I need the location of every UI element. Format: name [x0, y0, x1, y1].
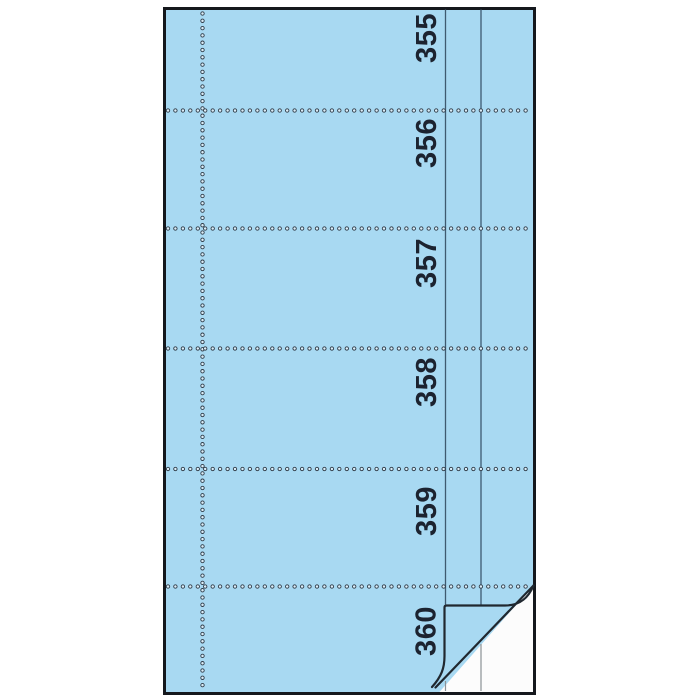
perforation-hole [315, 585, 318, 588]
perforation-hole [516, 585, 519, 588]
perforation-hole [405, 227, 408, 230]
perforation-hole [464, 109, 467, 112]
perforation-hole [211, 347, 214, 350]
perforation-hole [196, 227, 199, 230]
perforation-hole [412, 467, 415, 470]
perforation-hole [201, 78, 204, 81]
perforation-hole [201, 121, 204, 124]
perforation-hole [494, 467, 497, 470]
perforation-hole [218, 347, 221, 350]
perforation-hole [323, 227, 326, 230]
coupon-number-357: 357 [411, 238, 443, 288]
perforation-hole [201, 114, 204, 117]
perforation-hole [201, 567, 204, 570]
perforation-hole [204, 109, 207, 112]
perforation-hole [218, 467, 221, 470]
perforation-hole [382, 227, 385, 230]
perforation-hole [502, 227, 505, 230]
perforation-hole [201, 370, 204, 373]
perforation-hole [201, 85, 204, 88]
perforation-hole [201, 596, 204, 599]
perforation-hole [397, 227, 400, 230]
perforation-hole [442, 347, 445, 350]
perforation-hole [256, 347, 259, 350]
perforation-hole [435, 467, 438, 470]
perforation-hole [201, 202, 204, 205]
perforation-hole [524, 227, 527, 230]
perforation-hole [405, 467, 408, 470]
perforation-hole [174, 585, 177, 588]
perforation-hole [196, 467, 199, 470]
perforation-hole [201, 377, 204, 380]
perforation-hole [502, 585, 505, 588]
coupon-number-360: 360 [411, 606, 443, 656]
perforation-hole [233, 347, 236, 350]
perforation-hole [201, 12, 204, 15]
perforation-hole [201, 136, 204, 139]
perforation-hole [278, 109, 281, 112]
perforation-hole [201, 311, 204, 314]
perforation-hole [204, 467, 207, 470]
perforation-hole [233, 227, 236, 230]
perforation-hole [360, 109, 363, 112]
perforation-hole [201, 516, 204, 519]
perforation-hole [201, 275, 204, 278]
perforation-hole [427, 347, 430, 350]
perforation-hole [166, 227, 169, 230]
perforation-hole [166, 585, 169, 588]
perforation-hole [233, 467, 236, 470]
perforation-hole [412, 585, 415, 588]
product-photo: 355 356 357 358 359 360 [0, 0, 700, 700]
perforation-hole [449, 347, 452, 350]
perforation-hole [201, 479, 204, 482]
perforation-hole [353, 585, 356, 588]
perforation-hole [472, 347, 475, 350]
perforation-hole [211, 109, 214, 112]
perforation-hole [330, 227, 333, 230]
perforation-hole [300, 109, 303, 112]
perforation-hole [201, 669, 204, 672]
perforation-hole [278, 467, 281, 470]
perforation-hole [233, 585, 236, 588]
perforation-hole [442, 109, 445, 112]
perforation-hole [286, 467, 289, 470]
perforation-hole [201, 231, 204, 234]
perforation-hole [405, 109, 408, 112]
perforation-hole [196, 585, 199, 588]
perforation-hole [201, 494, 204, 497]
perforation-hole [201, 625, 204, 628]
perforation-hole [271, 467, 274, 470]
perforation-hole [457, 347, 460, 350]
perforation-hole [174, 347, 177, 350]
perforation-hole [464, 227, 467, 230]
perforation-hole [201, 618, 204, 621]
perforation-hole [487, 585, 490, 588]
perforation-hole [286, 585, 289, 588]
perforation-hole [201, 19, 204, 22]
perforation-hole [201, 355, 204, 358]
perforation-hole [308, 467, 311, 470]
perforation-hole [201, 472, 204, 475]
perforation-hole [263, 347, 266, 350]
perforation-hole [427, 467, 430, 470]
perforation-hole [201, 574, 204, 577]
perforation-hole [293, 109, 296, 112]
perforation-hole [218, 109, 221, 112]
perforation-hole [353, 347, 356, 350]
perforation-hole [338, 109, 341, 112]
perforation-hole [201, 180, 204, 183]
perforation-hole [263, 109, 266, 112]
perforation-hole [201, 676, 204, 679]
perforation-hole [201, 457, 204, 460]
perforation-hole [201, 589, 204, 592]
perforation-hole [367, 109, 370, 112]
perforation-hole [449, 227, 452, 230]
perforation-hole [420, 467, 423, 470]
perforation-hole [338, 347, 341, 350]
perforation-hole [308, 227, 311, 230]
perforation-hole [427, 227, 430, 230]
perforation-hole [201, 260, 204, 263]
coupon-number-359: 359 [411, 486, 443, 536]
perforation-hole [201, 172, 204, 175]
perforation-hole [338, 227, 341, 230]
perforation-hole [487, 347, 490, 350]
perforation-hole [201, 129, 204, 132]
perforation-hole [181, 585, 184, 588]
perforation-hole [201, 683, 204, 686]
perforation-hole [502, 347, 505, 350]
perforation-hole [189, 467, 192, 470]
perforation-hole [201, 559, 204, 562]
perforation-hole [201, 464, 204, 467]
perforation-hole [382, 467, 385, 470]
perforation-hole [494, 347, 497, 350]
perforation-hole [201, 56, 204, 59]
perforation-hole [218, 227, 221, 230]
perforation-hole [293, 467, 296, 470]
perforation-hole [204, 347, 207, 350]
perforation-hole [353, 227, 356, 230]
perforation-hole [196, 347, 199, 350]
order-pad-image: 355 356 357 358 359 360 [0, 0, 700, 700]
perforation-hole [442, 467, 445, 470]
perforation-hole [509, 467, 512, 470]
perforation-hole [427, 585, 430, 588]
perforation-hole [315, 347, 318, 350]
perforation-hole [435, 109, 438, 112]
perforation-hole [271, 227, 274, 230]
perforation-hole [204, 585, 207, 588]
perforation-hole [360, 347, 363, 350]
perforation-hole [256, 585, 259, 588]
perforation-hole [524, 585, 527, 588]
perforation-hole [201, 70, 204, 73]
perforation-hole [174, 109, 177, 112]
perforation-hole [330, 347, 333, 350]
perforation-hole [201, 245, 204, 248]
perforation-hole [201, 340, 204, 343]
perforation-hole [367, 467, 370, 470]
perforation-hole [201, 165, 204, 168]
perforation-hole [442, 227, 445, 230]
perforation-hole [300, 585, 303, 588]
perforation-hole [286, 227, 289, 230]
perforation-hole [390, 585, 393, 588]
perforation-hole [201, 238, 204, 241]
perforation-hole [201, 654, 204, 657]
perforation-hole [420, 227, 423, 230]
perforation-hole [201, 501, 204, 504]
perforation-hole [494, 585, 497, 588]
perforation-hole [524, 347, 527, 350]
perforation-hole [412, 347, 415, 350]
perforation-hole [338, 467, 341, 470]
perforation-hole [241, 585, 244, 588]
perforation-hole [323, 467, 326, 470]
perforation-hole [435, 347, 438, 350]
perforation-hole [464, 347, 467, 350]
perforation-hole [315, 109, 318, 112]
perforation-hole [390, 109, 393, 112]
perforation-hole [457, 467, 460, 470]
perforation-hole [201, 158, 204, 161]
perforation-hole [189, 347, 192, 350]
perforation-hole [487, 467, 490, 470]
perforation-hole [427, 109, 430, 112]
perforation-hole [293, 227, 296, 230]
perforation-hole [367, 585, 370, 588]
perforation-hole [479, 467, 482, 470]
perforation-hole [201, 92, 204, 95]
perforation-hole [201, 326, 204, 329]
perforation-hole [201, 304, 204, 307]
perforation-hole [278, 227, 281, 230]
perforation-hole [300, 227, 303, 230]
perforation-hole [502, 467, 505, 470]
perforation-hole [196, 109, 199, 112]
perforation-hole [360, 585, 363, 588]
perforation-hole [300, 347, 303, 350]
perforation-hole [375, 347, 378, 350]
perforation-hole [263, 227, 266, 230]
perforation-hole [449, 585, 452, 588]
perforation-hole [201, 399, 204, 402]
perforation-hole [201, 443, 204, 446]
perforation-hole [201, 282, 204, 285]
perforation-hole [278, 585, 281, 588]
perforation-hole [479, 227, 482, 230]
perforation-hole [479, 347, 482, 350]
perforation-hole [323, 347, 326, 350]
perforation-hole [449, 467, 452, 470]
coupon-number-358: 358 [411, 357, 443, 407]
perforation-hole [405, 585, 408, 588]
perforation-hole [278, 347, 281, 350]
perforation-hole [201, 450, 204, 453]
perforation-hole [189, 585, 192, 588]
perforation-hole [201, 413, 204, 416]
perforation-hole [315, 227, 318, 230]
perforation-hole [420, 585, 423, 588]
perforation-hole [201, 552, 204, 555]
perforation-hole [375, 109, 378, 112]
perforation-hole [300, 467, 303, 470]
perforation-hole [487, 227, 490, 230]
perforation-hole [201, 26, 204, 29]
perforation-hole [360, 227, 363, 230]
perforation-hole [201, 224, 204, 227]
perforation-hole [201, 194, 204, 197]
perforation-hole [494, 109, 497, 112]
perforation-hole [226, 227, 229, 230]
perforation-hole [174, 467, 177, 470]
perforation-hole [271, 109, 274, 112]
perforation-hole [166, 347, 169, 350]
perforation-hole [201, 523, 204, 526]
perforation-hole [390, 467, 393, 470]
perforation-hole [241, 109, 244, 112]
perforation-hole [435, 585, 438, 588]
perforation-hole [449, 109, 452, 112]
perforation-hole [397, 109, 400, 112]
perforation-hole [201, 391, 204, 394]
perforation-hole [271, 347, 274, 350]
perforation-hole [420, 109, 423, 112]
perforation-hole [201, 428, 204, 431]
perforation-hole [201, 48, 204, 51]
perforation-hole [201, 603, 204, 606]
perforation-hole [323, 109, 326, 112]
perforation-hole [201, 151, 204, 154]
coupon-number-355: 355 [411, 13, 443, 63]
perforation-hole [201, 530, 204, 533]
perforation-hole [457, 227, 460, 230]
perforation-hole [226, 585, 229, 588]
coupon-number-356: 356 [411, 118, 443, 168]
perforation-hole [509, 109, 512, 112]
perforation-hole [248, 109, 251, 112]
perforation-hole [201, 253, 204, 256]
perforation-hole [241, 227, 244, 230]
perforation-hole [516, 347, 519, 350]
perforation-hole [201, 662, 204, 665]
perforation-hole [472, 467, 475, 470]
perforation-hole [330, 585, 333, 588]
perforation-hole [226, 347, 229, 350]
perforation-hole [211, 467, 214, 470]
perforation-hole [189, 109, 192, 112]
perforation-hole [181, 109, 184, 112]
perforation-hole [330, 467, 333, 470]
perforation-hole [397, 467, 400, 470]
perforation-hole [502, 109, 505, 112]
perforation-hole [457, 585, 460, 588]
perforation-hole [256, 467, 259, 470]
perforation-hole [345, 467, 348, 470]
perforation-hole [218, 585, 221, 588]
perforation-hole [464, 585, 467, 588]
perforation-hole [201, 209, 204, 212]
perforation-hole [412, 227, 415, 230]
perforation-hole [201, 632, 204, 635]
perforation-hole [201, 486, 204, 489]
perforation-hole [494, 227, 497, 230]
perforation-hole [201, 143, 204, 146]
perforation-hole [181, 227, 184, 230]
perforation-hole [516, 227, 519, 230]
perforation-hole [375, 227, 378, 230]
perforation-hole [345, 347, 348, 350]
perforation-hole [201, 267, 204, 270]
perforation-hole [405, 347, 408, 350]
perforation-hole [479, 109, 482, 112]
perforation-hole [308, 347, 311, 350]
perforation-hole [201, 610, 204, 613]
perforation-hole [457, 109, 460, 112]
perforation-hole [509, 347, 512, 350]
perforation-hole [390, 347, 393, 350]
perforation-hole [263, 467, 266, 470]
perforation-hole [201, 435, 204, 438]
perforation-hole [516, 467, 519, 470]
perforation-hole [286, 109, 289, 112]
perforation-hole [516, 109, 519, 112]
perforation-hole [201, 63, 204, 66]
perforation-hole [201, 34, 204, 37]
perforation-hole [201, 362, 204, 365]
perforation-hole [201, 508, 204, 511]
perforation-hole [345, 227, 348, 230]
perforation-hole [201, 318, 204, 321]
perforation-hole [263, 585, 266, 588]
perforation-hole [390, 227, 393, 230]
perforation-hole [412, 109, 415, 112]
perforation-hole [271, 585, 274, 588]
perforation-hole [472, 109, 475, 112]
perforation-hole [248, 347, 251, 350]
perforation-hole [330, 109, 333, 112]
perforation-hole [435, 227, 438, 230]
perforation-hole [166, 467, 169, 470]
perforation-hole [315, 467, 318, 470]
perforation-hole [248, 467, 251, 470]
perforation-hole [181, 467, 184, 470]
perforation-hole [323, 585, 326, 588]
perforation-hole [201, 545, 204, 548]
perforation-hole [201, 647, 204, 650]
perforation-hole [464, 467, 467, 470]
perforation-hole [241, 347, 244, 350]
perforation-hole [360, 467, 363, 470]
perforation-hole [256, 227, 259, 230]
perforation-hole [201, 537, 204, 540]
perforation-hole [201, 581, 204, 584]
perforation-hole [201, 99, 204, 102]
perforation-hole [397, 585, 400, 588]
perforation-hole [201, 640, 204, 643]
perforation-hole [211, 585, 214, 588]
perforation-hole [382, 109, 385, 112]
perforation-hole [367, 227, 370, 230]
perforation-hole [286, 347, 289, 350]
perforation-hole [248, 585, 251, 588]
perforation-hole [487, 109, 490, 112]
perforation-hole [420, 347, 423, 350]
